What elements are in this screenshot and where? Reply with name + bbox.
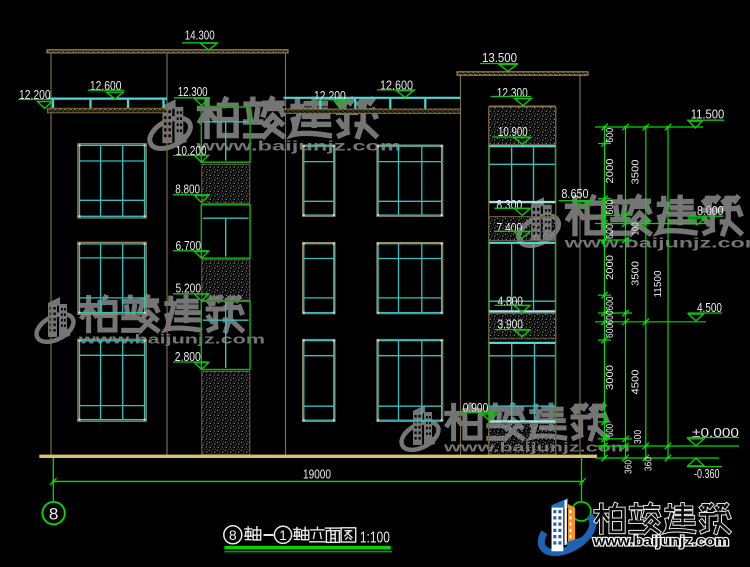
svg-text:600: 600 [605, 424, 616, 437]
svg-text:1:100: 1:100 [360, 530, 390, 547]
svg-text:2000: 2000 [605, 255, 616, 280]
svg-text:3500: 3500 [631, 159, 642, 184]
svg-text:360: 360 [624, 460, 635, 474]
svg-text:11500: 11500 [653, 270, 664, 297]
svg-text:8.300: 8.300 [496, 197, 522, 212]
svg-text:3000: 3000 [605, 365, 616, 390]
svg-text:8.650: 8.650 [561, 186, 588, 201]
svg-text:600: 600 [605, 310, 616, 324]
svg-text:8: 8 [49, 504, 58, 523]
svg-text:600: 600 [605, 324, 616, 338]
svg-text:-0.360: -0.360 [694, 466, 720, 481]
svg-text:2000: 2000 [605, 158, 616, 183]
svg-text:1: 1 [279, 528, 287, 543]
svg-text:600: 600 [605, 127, 616, 142]
svg-text:www.baijunjz.com: www.baijunjz.com [592, 534, 729, 549]
svg-text:11.500: 11.500 [691, 107, 725, 122]
svg-text:3500: 3500 [631, 261, 642, 286]
svg-text:100: 100 [631, 222, 642, 235]
svg-text:www.baijunjz.com: www.baijunjz.com [563, 235, 750, 250]
svg-text:360: 360 [644, 457, 655, 471]
svg-text:600: 600 [605, 199, 616, 214]
svg-text:14.300: 14.300 [185, 27, 215, 42]
svg-text:12.300: 12.300 [178, 84, 208, 99]
svg-text:600: 600 [605, 224, 616, 239]
svg-text:600: 600 [605, 296, 616, 310]
svg-text:7.400: 7.400 [496, 220, 522, 235]
svg-text:8: 8 [229, 527, 237, 543]
svg-text:19000: 19000 [303, 467, 331, 482]
svg-text:12.300: 12.300 [497, 85, 528, 100]
svg-text:4500: 4500 [631, 369, 642, 394]
svg-text:300: 300 [633, 430, 644, 444]
